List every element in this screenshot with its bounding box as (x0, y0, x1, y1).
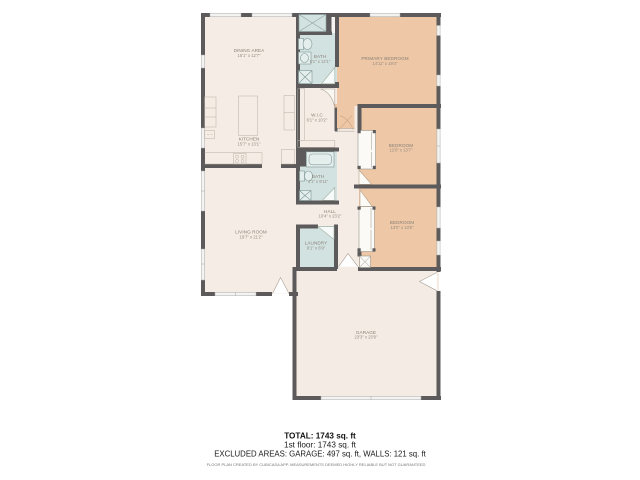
svg-text:4'1" x 9'11": 4'1" x 9'11" (308, 179, 329, 184)
svg-text:12'0" x 13'7": 12'0" x 13'7" (390, 148, 413, 153)
svg-text:TOTAL: 1743 sq. ft: TOTAL: 1743 sq. ft (284, 432, 356, 441)
svg-text:5'1" x 12'1": 5'1" x 12'1" (310, 59, 331, 64)
svg-text:9'1" x 6'9": 9'1" x 6'9" (307, 245, 326, 250)
svg-text:1st floor: 1743 sq. ft: 1st floor: 1743 sq. ft (284, 441, 357, 450)
svg-text:EXCLUDED AREAS: GARAGE: 497 sq: EXCLUDED AREAS: GARAGE: 497 sq. ft, WALL… (214, 450, 426, 459)
svg-text:6'1" x 10'2": 6'1" x 10'2" (307, 117, 328, 122)
svg-text:FLOOR PLAN CREATED BY CUBICASA: FLOOR PLAN CREATED BY CUBICASA APP. MEAS… (207, 462, 426, 467)
svg-text:15'7" x 13'1": 15'7" x 13'1" (238, 141, 261, 146)
svg-text:10'4" x 23'2": 10'4" x 23'2" (319, 214, 342, 219)
svg-text:15'1" x 12'7": 15'1" x 12'7" (238, 53, 261, 58)
svg-text:14'11" x 19'4": 14'11" x 19'4" (373, 61, 398, 66)
svg-text:23'3" x 23'9": 23'3" x 23'9" (355, 335, 378, 340)
svg-text:19'7" x 21'2": 19'7" x 21'2" (240, 234, 263, 239)
svg-text:13'0" x 13'5": 13'0" x 13'5" (391, 225, 414, 230)
